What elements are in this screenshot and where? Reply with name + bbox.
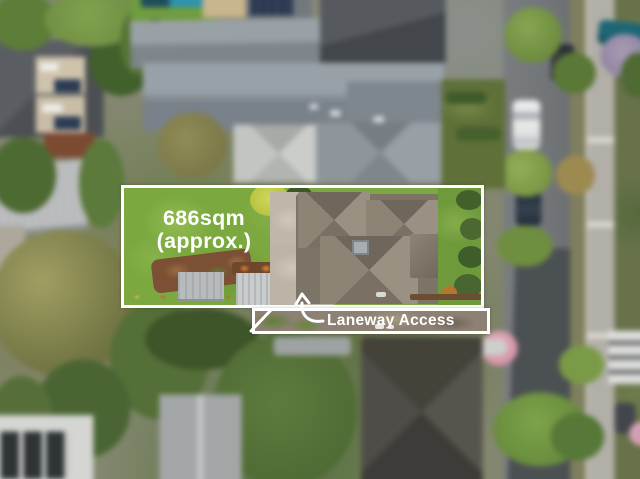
weathered-white-roof (233, 125, 324, 183)
gray-roof-bottom-center (159, 395, 241, 479)
hedge-row (446, 92, 487, 104)
olive-tree-mid (157, 112, 227, 178)
street-tree (553, 53, 596, 94)
area-label-line1: 686sqm (124, 207, 284, 230)
solar-panel-array (250, 0, 293, 15)
dark-roof-top-right (320, 0, 446, 63)
terrace-furniture (40, 63, 59, 71)
white-building-roadside (608, 331, 640, 385)
hedge-row (456, 127, 501, 141)
dark-hip-roof-house-bottom (361, 337, 483, 479)
roof-vent (310, 104, 318, 109)
street-tree-autumn (556, 156, 595, 195)
sidewalk-joint (586, 137, 617, 143)
gray-roof-top-center (130, 18, 326, 69)
laneway-access-label: Laneway Access (327, 312, 455, 330)
swimming-pool (141, 0, 205, 7)
car-dark-blue (516, 193, 542, 226)
aerial-photo: 686sqm (approx.) Laneway Access (0, 0, 640, 479)
street-tree (499, 149, 553, 196)
roof-vent (330, 110, 340, 116)
street-tree (551, 413, 605, 460)
street-tree (497, 226, 553, 267)
street-tree (559, 345, 604, 384)
sidewalk-joint (586, 221, 617, 227)
area-label: 686sqm (approx.) (124, 207, 284, 253)
gray-hip-roof-mid (316, 123, 446, 183)
terrace-furniture (42, 104, 63, 112)
car-white (513, 100, 541, 149)
tree (79, 139, 124, 228)
solar-panel (54, 116, 81, 129)
solar-panel (54, 79, 81, 92)
street-tree (504, 7, 562, 63)
dark-panels-bottom-left (1, 432, 69, 479)
area-label-line2: (approx.) (124, 230, 284, 253)
gray-roof-below-lane (274, 337, 351, 356)
